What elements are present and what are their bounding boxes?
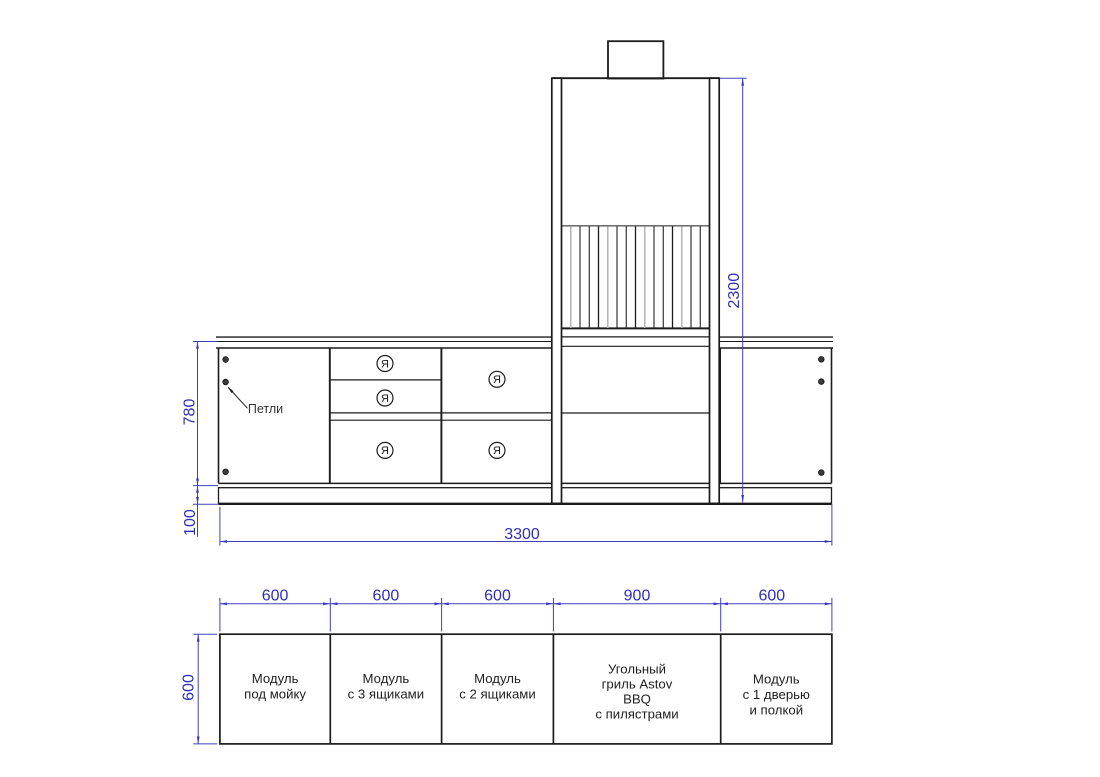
svg-text:600: 600 — [181, 674, 198, 701]
svg-text:под мойку: под мойку — [244, 687, 306, 702]
svg-text:600: 600 — [758, 587, 785, 604]
svg-text:780: 780 — [182, 399, 199, 426]
svg-text:с 3 ящиками: с 3 ящиками — [348, 687, 424, 702]
svg-text:Петли: Петли — [248, 402, 283, 416]
svg-text:и полкой: и полкой — [750, 702, 804, 717]
svg-text:600: 600 — [262, 587, 289, 604]
svg-text:Я: Я — [381, 445, 389, 457]
svg-text:Угольный: Угольный — [608, 661, 666, 676]
svg-text:Я: Я — [493, 374, 501, 386]
svg-text:Модуль: Модуль — [474, 671, 521, 686]
svg-text:600: 600 — [373, 587, 400, 604]
svg-text:100: 100 — [182, 509, 199, 536]
svg-text:600: 600 — [484, 587, 511, 604]
svg-text:BBQ: BBQ — [623, 692, 651, 707]
svg-text:с пилястрами: с пилястрами — [595, 707, 678, 722]
svg-text:Модуль: Модуль — [363, 671, 410, 686]
svg-text:гриль Astov: гриль Astov — [602, 676, 673, 691]
svg-text:с 1 дверью: с 1 дверью — [743, 687, 810, 702]
svg-text:с 2 ящиками: с 2 ящиками — [459, 687, 535, 702]
svg-text:Я: Я — [381, 358, 389, 370]
svg-text:Модуль: Модуль — [252, 671, 299, 686]
svg-text:Я: Я — [381, 393, 389, 405]
svg-text:2300: 2300 — [726, 273, 743, 309]
svg-text:900: 900 — [624, 587, 651, 604]
svg-text:Я: Я — [493, 445, 501, 457]
svg-text:Модуль: Модуль — [753, 671, 800, 686]
svg-text:3300: 3300 — [504, 526, 540, 543]
